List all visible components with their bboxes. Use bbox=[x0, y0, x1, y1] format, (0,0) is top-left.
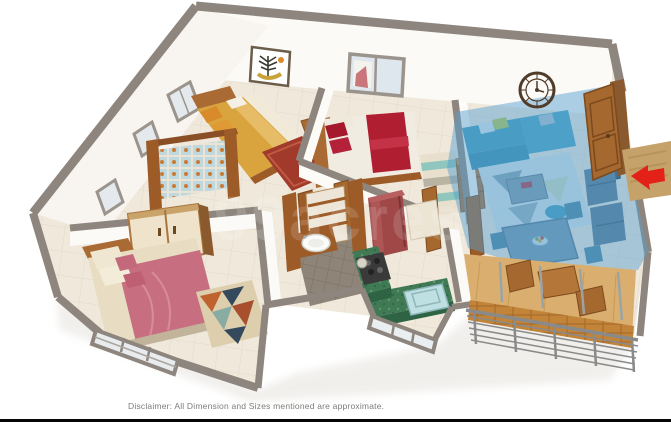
floorplan-image: 99acres Disclaimer: All Dimension and Si… bbox=[0, 0, 671, 422]
floorplan-svg: 99acres bbox=[0, 0, 671, 422]
wood-table bbox=[538, 266, 580, 298]
watermark: 99acres bbox=[214, 185, 466, 254]
door-knob bbox=[606, 134, 610, 138]
wall-art-frame bbox=[250, 47, 290, 86]
wall-cap-dining-front bbox=[452, 304, 472, 307]
wood-chair bbox=[576, 286, 606, 316]
back-window bbox=[348, 54, 404, 96]
wood-chair bbox=[506, 260, 534, 292]
wall-clock-icon bbox=[520, 73, 554, 107]
disclaimer-text: Disclaimer: All Dimension and Sizes ment… bbox=[128, 401, 384, 411]
